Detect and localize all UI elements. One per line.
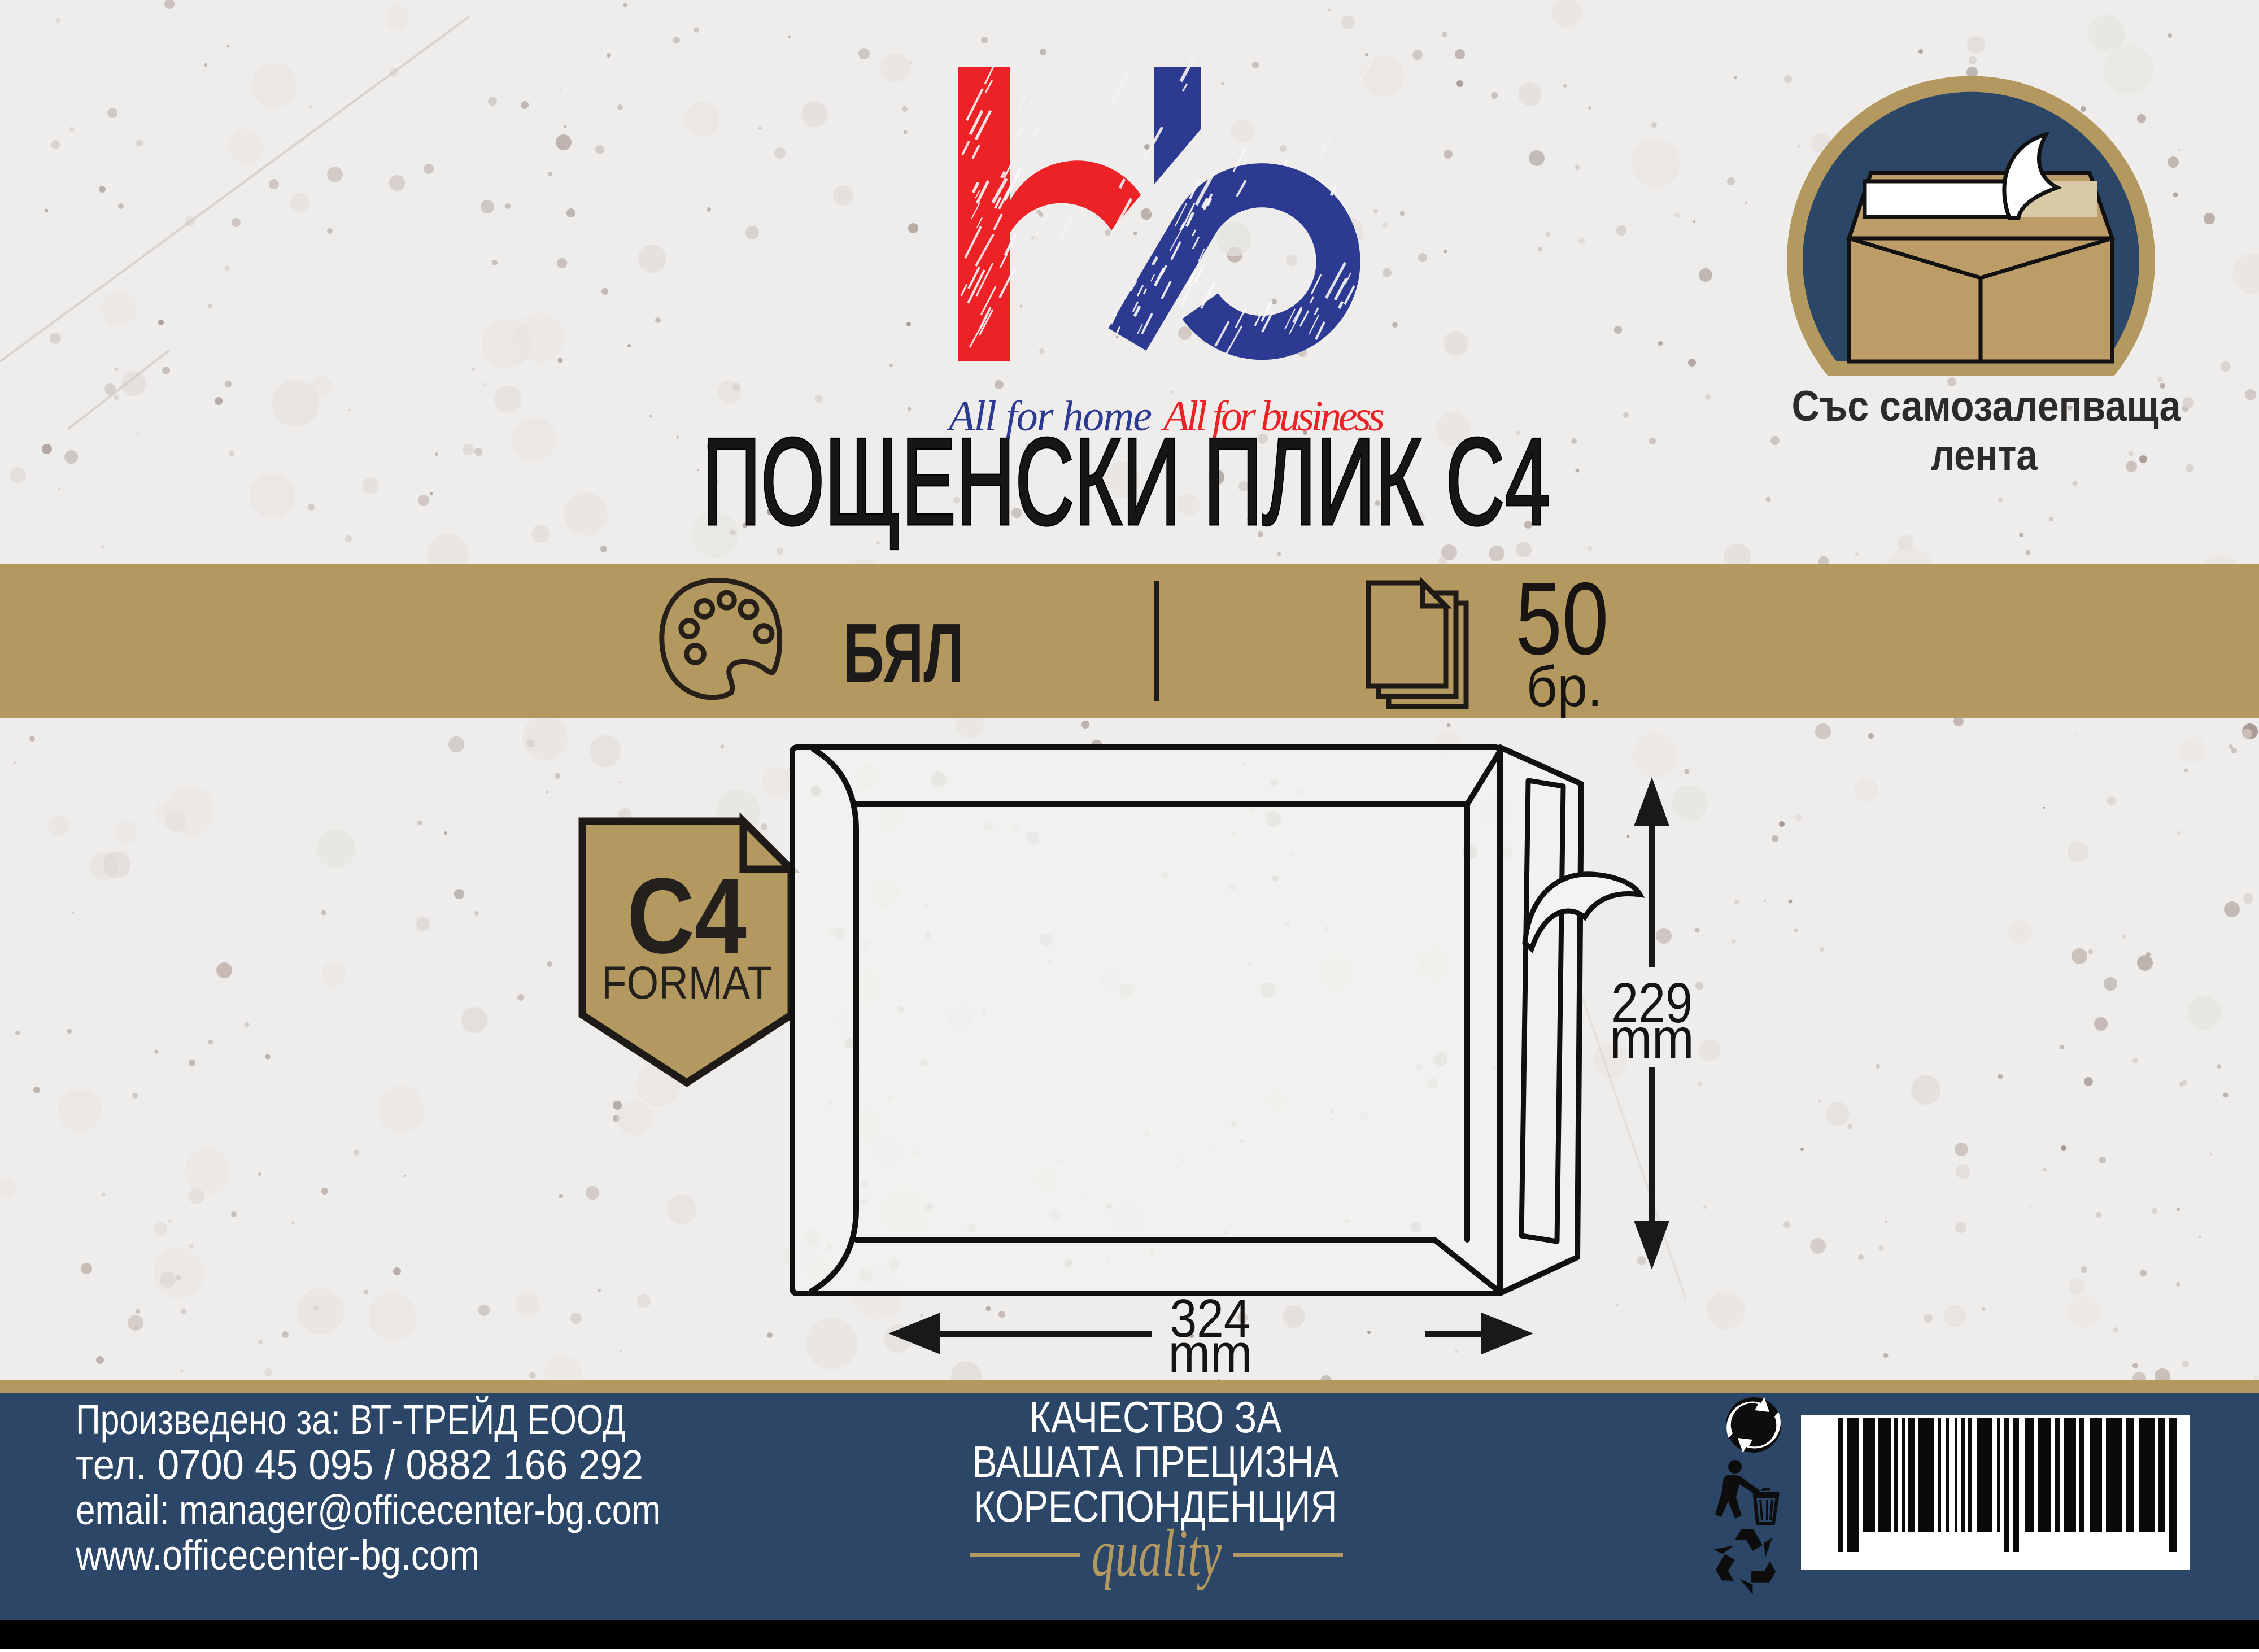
svg-text:email: manager@officecenter-bg: email: manager@officecenter-bg.com <box>76 1487 661 1533</box>
svg-text:quality: quality <box>1092 1515 1222 1590</box>
svg-text:тел. 0700 45 095 / 0882 166 29: тел. 0700 45 095 / 0882 166 292 <box>76 1441 643 1488</box>
svg-text:mm: mm <box>1610 1007 1694 1070</box>
svg-text:ВАШАТА ПРЕЦИЗНА: ВАШАТА ПРЕЦИЗНА <box>972 1437 1339 1487</box>
svg-text:FORMAT: FORMAT <box>601 957 772 1009</box>
svg-text:лента: лента <box>1931 431 2038 480</box>
svg-text:www.officecenter-bg.com: www.officecenter-bg.com <box>75 1532 479 1579</box>
svg-text:бр.: бр. <box>1527 655 1603 718</box>
svg-text:БЯЛ: БЯЛ <box>843 607 963 700</box>
svg-text:КАЧЕСТВО ЗА: КАЧЕСТВО ЗА <box>1030 1392 1282 1442</box>
svg-text:ПОЩЕНСКИ ПЛИК С4: ПОЩЕНСКИ ПЛИК С4 <box>702 413 1550 551</box>
svg-text:Произведено за: ВТ-ТРЕЙД ЕООД: Произведено за: ВТ-ТРЕЙД ЕООД <box>76 1396 626 1443</box>
svg-text:mm: mm <box>1168 1323 1253 1384</box>
svg-text:Със самозалепваща: Със самозалепваща <box>1792 382 2182 430</box>
